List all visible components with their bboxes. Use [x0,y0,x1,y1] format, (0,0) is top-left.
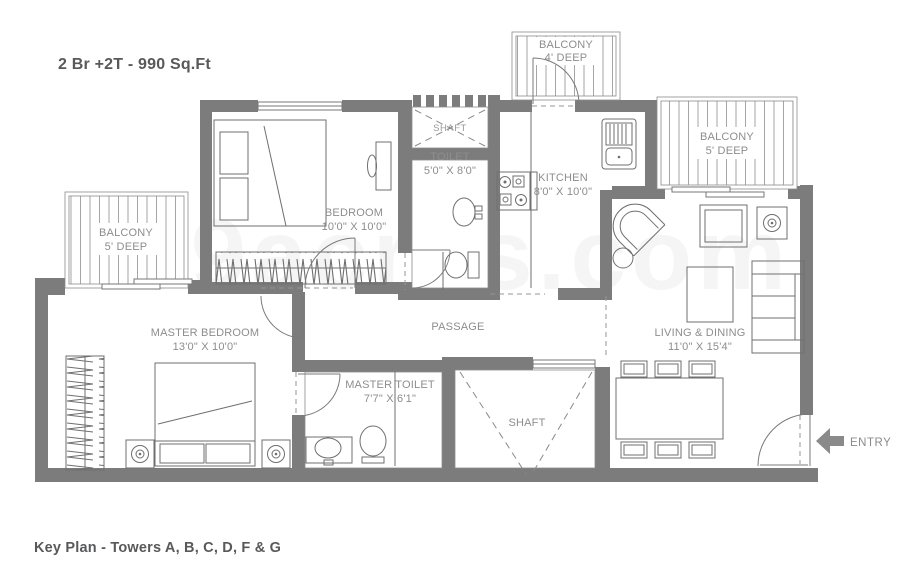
sofa [752,261,804,353]
balcony-top-dims: 4' DEEP [545,52,588,64]
living-dining-label: LIVING & DINING [654,327,745,339]
balcony-left: BALCONY 5' DEEP [65,192,192,289]
master-wardrobe [66,356,104,470]
bedroom-window [258,102,342,110]
kitchen-label: KITCHEN [538,172,588,184]
armchair [604,195,665,256]
passage-label: PASSAGE [431,321,484,333]
balcony-right-label: BALCONY [700,131,754,143]
balcony-right-dims: 5' DEEP [706,145,749,157]
sliding-door [134,279,192,284]
study-table [368,142,392,190]
floor-plan: BALCONY 4' DEEP BALCONY 5' DEEP BALCONY … [0,0,900,572]
tv-table [700,205,747,247]
entry-door [758,414,810,466]
kitchen-dims: 8'0" X 10'0" [534,186,592,198]
bedroom-dims: 10'0" X 10'0" [322,221,387,233]
balcony-top-label: BALCONY [539,39,593,51]
living-dining-dims: 11'0" X 15'4" [668,341,732,353]
lamp-table [757,207,787,239]
sliding-door [706,192,764,197]
toilet-box [412,160,488,288]
balcony-right: BALCONY 5' DEEP [657,97,797,197]
master-toilet-label: MASTER TOILET [345,379,435,391]
sliding-door [672,187,730,192]
entry-marker: ENTRY [816,428,891,454]
nightstand [126,440,154,468]
balcony-top: BALCONY 4' DEEP [512,32,620,100]
balcony-left-label: BALCONY [99,227,153,239]
dining-table [616,361,723,458]
coffee-table [687,267,733,322]
entry-label: ENTRY [850,437,891,449]
hob [497,172,530,210]
kitchen-sink [602,119,636,169]
floor-plan-canvas: 99acres.com 2 Br +2T - 990 Sq.Ft Key Pla… [0,0,900,572]
shaft-lower-label: SHAFT [508,417,545,429]
passage-ledge [533,360,595,368]
sliding-door [102,284,160,289]
master-bedroom-label: MASTER BEDROOM [151,327,260,339]
nightstand [262,440,290,468]
master-bed [155,363,255,466]
round-table [613,248,633,268]
toilet-dims: 5'0" X 8'0" [424,165,476,177]
master-bedroom-dims: 13'0" X 10'0" [173,341,238,353]
bed [214,120,326,226]
entry-arrow-icon [816,428,844,454]
wardrobe [216,252,386,284]
master-toilet-dims: 7'7" X 6'1" [364,393,416,405]
balcony-left-dims: 5' DEEP [105,241,148,253]
kitchen-counter [531,112,537,288]
bedroom-label: BEDROOM [325,207,383,219]
toilet-label: TOILET [430,151,470,163]
